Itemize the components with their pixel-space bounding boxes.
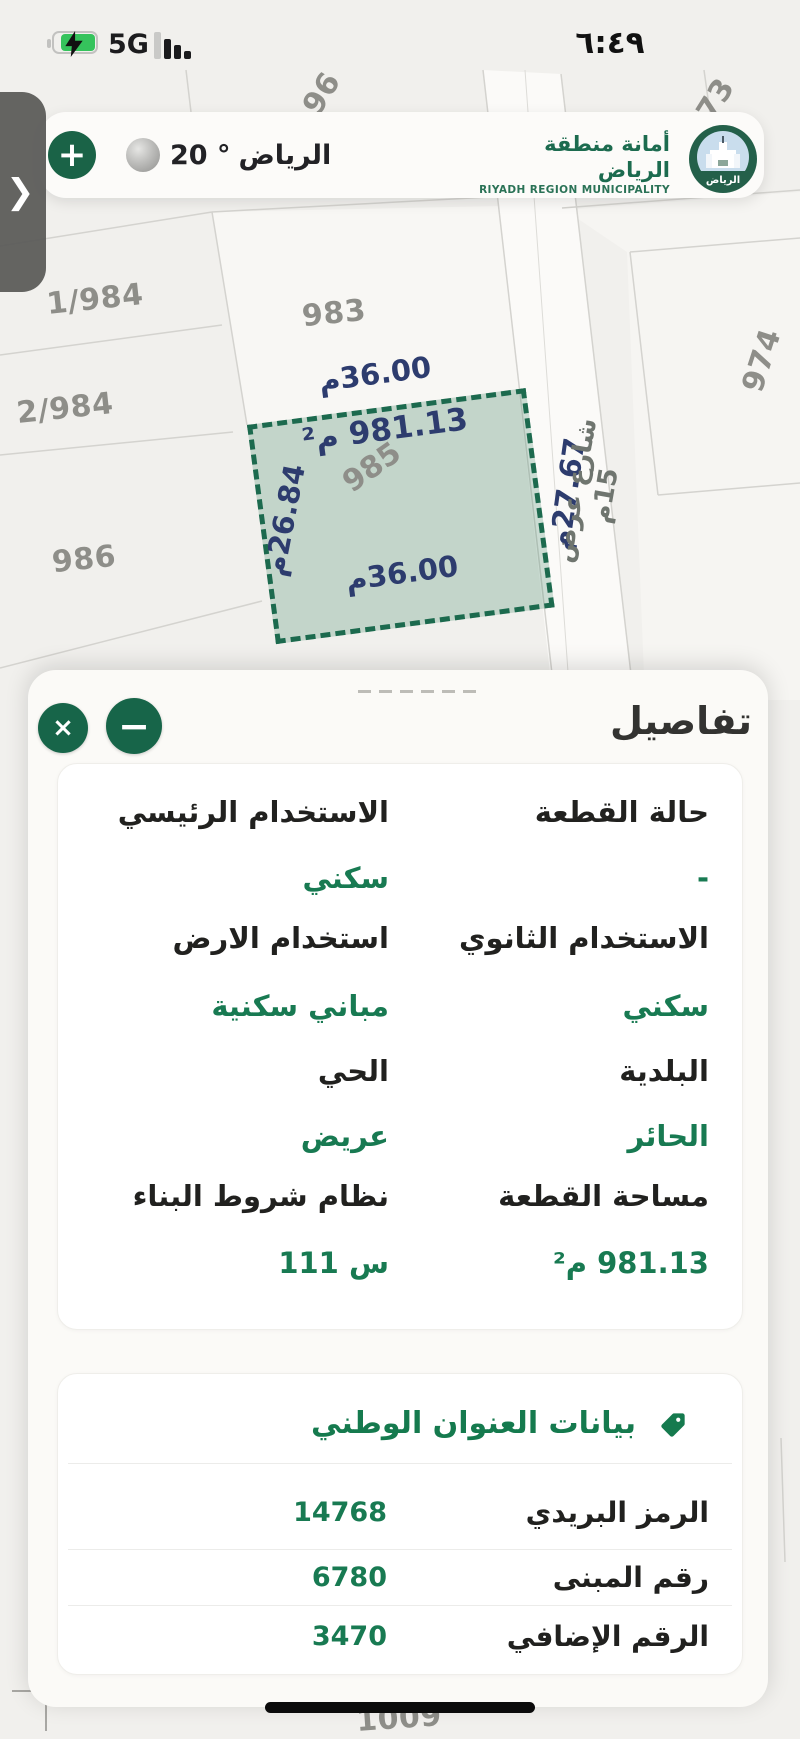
- address-row-label: رقم المبنى: [553, 1558, 709, 1598]
- field-label: الاستخدام الثانوي: [459, 918, 709, 958]
- field-label: مساحة القطعة: [498, 1176, 709, 1216]
- close-icon: ×: [52, 713, 74, 743]
- status-bar: 5G ٦:٤٩: [0, 0, 800, 70]
- chevron-right-icon: ❯: [6, 172, 35, 212]
- divider: [68, 1605, 732, 1606]
- logo-title-arabic: أمانة منطقة الرياض: [470, 131, 670, 183]
- field-value: سكني: [622, 986, 709, 1026]
- close-button[interactable]: ×: [38, 703, 88, 753]
- municipality-logo-text: أمانة منطقة الرياض RIYADH REGION MUNICIP…: [470, 131, 670, 198]
- national-address-card: بيانات العنوان الوطني الرمز البريدي 1476…: [57, 1373, 743, 1675]
- national-address-title: بيانات العنوان الوطني: [311, 1404, 636, 1444]
- address-row-value: 3470: [312, 1617, 387, 1657]
- sheet-drag-handle-icon[interactable]: [358, 690, 483, 693]
- divider: [68, 1549, 732, 1550]
- field-value: عريض: [301, 1116, 389, 1156]
- field-value: مباني سكنية: [211, 986, 389, 1026]
- sheet-title: تفاصيل: [610, 700, 752, 742]
- weather-widget[interactable]: 20 ° الرياض: [170, 140, 331, 171]
- riyadh-municipality-map-app: { "status_bar": { "time": "٦:٤٩", "netwo…: [0, 0, 800, 1731]
- field-label: الحي: [318, 1051, 389, 1091]
- svg-text:الرياض: الرياض: [706, 175, 740, 186]
- address-row-label: الرمز البريدي: [526, 1493, 709, 1533]
- field-label: الاستخدام الرئيسي: [118, 792, 389, 832]
- minimize-icon: −: [118, 704, 150, 748]
- side-drawer-handle[interactable]: ❯: [0, 92, 46, 292]
- municipality-emblem-icon: الرياض: [688, 124, 758, 194]
- field-label: البلدية: [619, 1051, 709, 1091]
- details-sheet: تفاصيل × − حالة القطعة الاستخدام الرئيسي…: [28, 670, 768, 1707]
- field-label: استخدام الارض: [173, 918, 389, 958]
- field-value: 981.13 م²: [553, 1243, 709, 1283]
- moon-weather-icon: [126, 138, 160, 172]
- status-time: ٦:٤٩: [555, 25, 665, 61]
- field-value: -: [697, 858, 709, 898]
- weather-temp: 20 °: [170, 140, 230, 171]
- field-value: س 111: [278, 1243, 389, 1283]
- signal-bars-icon: [154, 32, 200, 59]
- address-row-label: الرقم الإضافي: [507, 1617, 709, 1657]
- minimize-button[interactable]: −: [106, 698, 162, 754]
- plot-details-card: حالة القطعة الاستخدام الرئيسي - سكني الا…: [57, 763, 743, 1330]
- tag-icon: [659, 1411, 687, 1439]
- field-value: الحائر: [627, 1116, 709, 1156]
- weather-city: الرياض: [238, 140, 331, 171]
- logo-title-english: RIYADH REGION MUNICIPALITY: [470, 183, 670, 198]
- network-type-label: 5G: [108, 29, 149, 60]
- battery-charging-icon: [52, 31, 98, 54]
- address-row-value: 6780: [312, 1558, 387, 1598]
- home-indicator[interactable]: [265, 1702, 535, 1713]
- field-value: سكني: [302, 858, 389, 898]
- field-label: نظام شروط البناء: [133, 1176, 389, 1216]
- divider: [68, 1463, 732, 1464]
- address-row-value: 14768: [293, 1493, 387, 1533]
- add-button[interactable]: +: [48, 131, 96, 179]
- field-label: حالة القطعة: [535, 792, 709, 832]
